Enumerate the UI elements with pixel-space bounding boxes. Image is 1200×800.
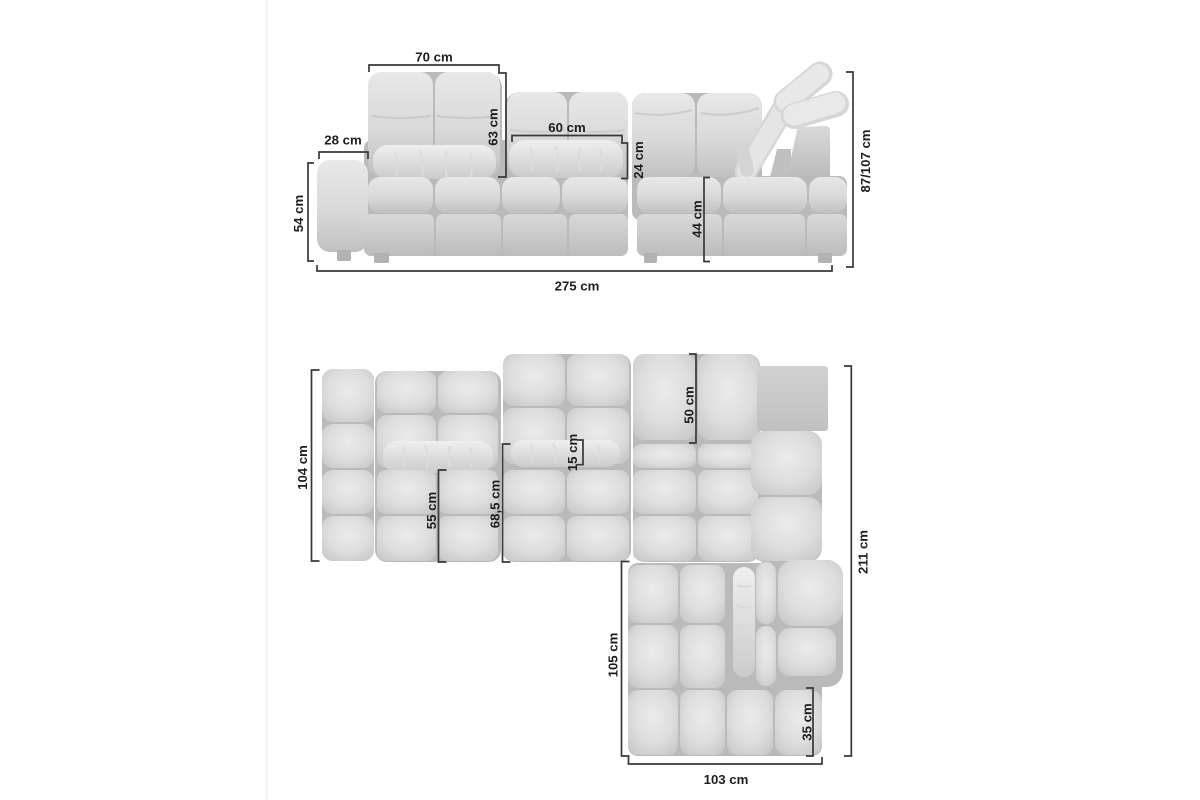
- svg-text:60 cm: 60 cm: [548, 120, 585, 135]
- svg-text:104 cm: 104 cm: [295, 445, 310, 490]
- svg-text:35 cm: 35 cm: [800, 703, 815, 740]
- svg-text:15 cm: 15 cm: [565, 434, 580, 471]
- svg-text:103 cm: 103 cm: [704, 772, 749, 787]
- svg-text:55 cm: 55 cm: [424, 492, 439, 529]
- svg-text:275 cm: 275 cm: [555, 279, 600, 294]
- svg-text:68,5 cm: 68,5 cm: [488, 480, 503, 528]
- svg-text:24 cm: 24 cm: [631, 141, 646, 178]
- svg-text:28 cm: 28 cm: [324, 133, 361, 148]
- svg-text:87/107 cm: 87/107 cm: [858, 129, 873, 192]
- svg-text:105 cm: 105 cm: [606, 633, 621, 678]
- svg-text:50 cm: 50 cm: [681, 386, 696, 423]
- svg-text:63 cm: 63 cm: [486, 108, 501, 145]
- svg-text:70 cm: 70 cm: [415, 50, 452, 65]
- svg-text:44 cm: 44 cm: [689, 200, 704, 237]
- svg-text:54 cm: 54 cm: [291, 195, 306, 232]
- svg-text:211 cm: 211 cm: [855, 530, 870, 574]
